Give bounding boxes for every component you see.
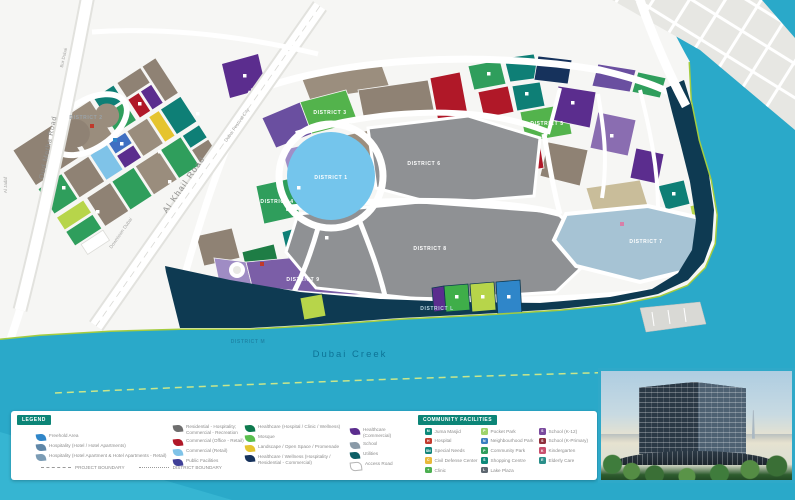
legend-item: Residential - Hospitality; Commercial - …	[173, 424, 253, 435]
legend-item-label: Access Road	[365, 461, 393, 467]
facility-item-label: Hospital	[435, 438, 452, 443]
district-label: DISTRICT L	[420, 306, 454, 312]
legend-item-label: Healthcare (Hospital / Clinic / Wellness…	[258, 424, 340, 430]
facility-swatch-icon: N	[481, 438, 488, 445]
legend-item: Access Road	[350, 461, 414, 470]
facility-item: EElderly Care	[539, 457, 588, 464]
legend-column: Healthcare (Hospital / Clinic / Wellness…	[245, 424, 347, 468]
legend-item-label: Mosque	[258, 434, 275, 440]
dubai-creek-label: Dubai Creek	[313, 349, 388, 360]
legend-item-label: Hospitality (Hotel Apartment & Hotel Apa…	[49, 453, 167, 459]
legend-title-badge: LEGEND	[17, 415, 51, 425]
district-label: DISTRICT 8	[413, 246, 446, 252]
legend-item-label: Residential - Hospitality; Commercial - …	[186, 424, 253, 435]
legend-item: Mosque	[245, 434, 347, 441]
facility-item-label: Shopping Centre	[491, 458, 526, 463]
facility-item: SSchool (K-Primary)	[539, 438, 588, 445]
district-label: DISTRICT 1	[314, 175, 347, 181]
legend-item-label: Hospitality (Hotel / Hotel Apartments)	[49, 443, 126, 449]
legend-column: Residential - Hospitality; Commercial - …	[173, 424, 253, 468]
legend-item: Healthcare (Hospital / Clinic / Wellness…	[245, 424, 347, 431]
legend-leaf-swatch-icon	[36, 443, 47, 451]
legend-leaf-swatch-icon	[245, 424, 256, 432]
district-label: DISTRICT 6	[407, 161, 440, 167]
facility-item-label: School (K-Primary)	[549, 438, 589, 443]
district-label: DISTRICT 9	[286, 277, 319, 283]
facility-swatch-icon: K	[539, 447, 546, 454]
legend-item-label: Landscape / Open Space / Promenade	[258, 444, 339, 450]
legend-item-label: Commercial (Retail)	[186, 448, 227, 454]
legend-item: Utilities	[350, 451, 414, 458]
facilities-column: SSchool (K-12)SSchool (K-Primary)KKinder…	[539, 428, 588, 467]
legend-item-label: Freehold Area	[49, 433, 78, 439]
masterplan-map: Oud Metha Road Bur Dubai Al Jadaf Al Kha…	[0, 0, 795, 500]
legend-item: School	[350, 441, 414, 448]
legend-item: Landscape / Open Space / Promenade	[245, 444, 347, 451]
facilities-column: PPocket ParkNNeighbourhood ParkPCommunit…	[481, 428, 534, 476]
facility-swatch-icon: +	[425, 467, 432, 474]
legend-leaf-swatch-icon	[245, 434, 256, 442]
render-tower	[639, 382, 746, 454]
facility-swatch-icon: C	[425, 457, 432, 464]
facility-swatch-icon: P	[481, 447, 488, 454]
legend-column: Healthcare (Commercial)SchoolUtilitiesAc…	[350, 427, 414, 473]
facility-swatch-icon: S	[539, 428, 546, 435]
facility-item: PCommunity Park	[481, 447, 534, 454]
facility-item: PPocket Park	[481, 428, 534, 435]
legend-item: Healthcare / Wellness (Hospitality / Res…	[245, 454, 347, 465]
facility-item: NNeighbourhood Park	[481, 438, 534, 445]
facility-swatch-icon: L	[481, 467, 488, 474]
facility-swatch-icon: SN	[425, 447, 432, 454]
project-boundary-label: PROJECT BOUNDARY	[75, 465, 125, 470]
al-jadaf-label: Al Jadaf	[3, 176, 8, 193]
legend-panel: LEGEND Freehold AreaHospitality (Hotel /…	[11, 411, 597, 480]
legend-leaf-swatch-icon	[36, 433, 47, 441]
facility-item-label: Kindergarten	[549, 448, 576, 453]
facility-swatch-icon: P	[481, 428, 488, 435]
facility-item-label: Civil Defense Center	[435, 458, 478, 463]
facility-swatch-icon: S	[481, 457, 488, 464]
facility-item: SShopping Centre	[481, 457, 534, 464]
legend-item-label: Healthcare (Commercial)	[363, 427, 414, 438]
facility-swatch-icon: E	[539, 457, 546, 464]
facility-swatch-icon: M	[425, 428, 432, 435]
district-label: DISTRICT M	[231, 339, 266, 345]
facility-item: HHospital	[425, 438, 478, 445]
project-boundary-sample	[41, 467, 71, 468]
legend-item-label: School	[363, 441, 377, 447]
facility-item-label: Special Needs	[435, 448, 465, 453]
legend-column: Freehold AreaHospitality (Hotel / Hotel …	[36, 433, 184, 463]
boundary-legend-row: PROJECT BOUNDARY DISTRICT BOUNDARY	[37, 465, 222, 470]
district-boundary-sample	[139, 467, 169, 468]
facility-item: MJuma Masjid	[425, 428, 478, 435]
district-label: DISTRICT 4	[260, 199, 293, 205]
district-boundary-label: DISTRICT BOUNDARY	[173, 465, 222, 470]
facility-item-label: Elderly Care	[549, 458, 575, 463]
legend-leaf-swatch-icon	[245, 444, 256, 452]
legend-item-label: Commercial (Office - Retail)	[186, 438, 244, 444]
facility-item: SNSpecial Needs	[425, 447, 478, 454]
district-label: DISTRICT 5	[530, 121, 563, 127]
legend-item-label: Healthcare / Wellness (Hospitality / Res…	[258, 454, 347, 465]
facility-swatch-icon: S	[539, 438, 546, 445]
legend-item: Freehold Area	[36, 433, 184, 440]
legend-item: Healthcare (Commercial)	[350, 427, 414, 438]
legend-item: Hospitality (Hotel / Hotel Apartments)	[36, 443, 184, 450]
facility-item-label: Juma Masjid	[435, 429, 461, 434]
facility-item: KKindergarten	[539, 447, 588, 454]
legend-leaf-swatch-icon	[350, 427, 361, 435]
legend-leaf-swatch-icon	[350, 451, 361, 459]
legend-leaf-swatch-icon	[350, 461, 363, 471]
legend-leaf-swatch-icon	[350, 441, 361, 449]
roundabout-center	[233, 266, 241, 274]
facility-item-label: Pocket Park	[491, 429, 516, 434]
district-label: DISTRICT 3	[313, 110, 346, 116]
facility-swatch-icon: H	[425, 438, 432, 445]
facility-item: CCivil Defense Center	[425, 457, 478, 464]
legend-item: Hospitality (Hotel Apartment & Hotel Apa…	[36, 453, 184, 460]
legend-leaf-swatch-icon	[173, 448, 184, 456]
building-render-inset	[598, 368, 795, 483]
facility-item-label: Community Park	[491, 448, 526, 453]
legend-item: Commercial (Retail)	[173, 448, 253, 455]
facility-item: SSchool (K-12)	[539, 428, 588, 435]
legend-leaf-swatch-icon	[36, 453, 47, 461]
render-trees	[601, 445, 792, 480]
facility-item-label: Lake Plaza	[491, 468, 514, 473]
legend-item-label: Utilities	[363, 451, 378, 457]
community-facilities-title-badge: COMMUNITY FACILITIES	[418, 415, 497, 425]
district-label: DISTRICT 2	[69, 115, 102, 121]
legend-leaf-swatch-icon	[173, 424, 184, 432]
facility-item: +Clinic	[425, 467, 478, 474]
district-label: DISTRICT 7	[629, 239, 662, 245]
facilities-column: MJuma MasjidHHospitalSNSpecial NeedsCCiv…	[425, 428, 478, 476]
facility-item-label: Clinic	[435, 468, 446, 473]
legend-leaf-swatch-icon	[245, 454, 256, 462]
facility-item-label: School (K-12)	[549, 429, 578, 434]
facility-item: LLake Plaza	[481, 467, 534, 474]
legend-item: Commercial (Office - Retail)	[173, 438, 253, 445]
legend-leaf-swatch-icon	[173, 438, 184, 446]
facility-item-label: Neighbourhood Park	[491, 438, 534, 443]
legend-item-label: Public Facilities	[186, 458, 218, 464]
